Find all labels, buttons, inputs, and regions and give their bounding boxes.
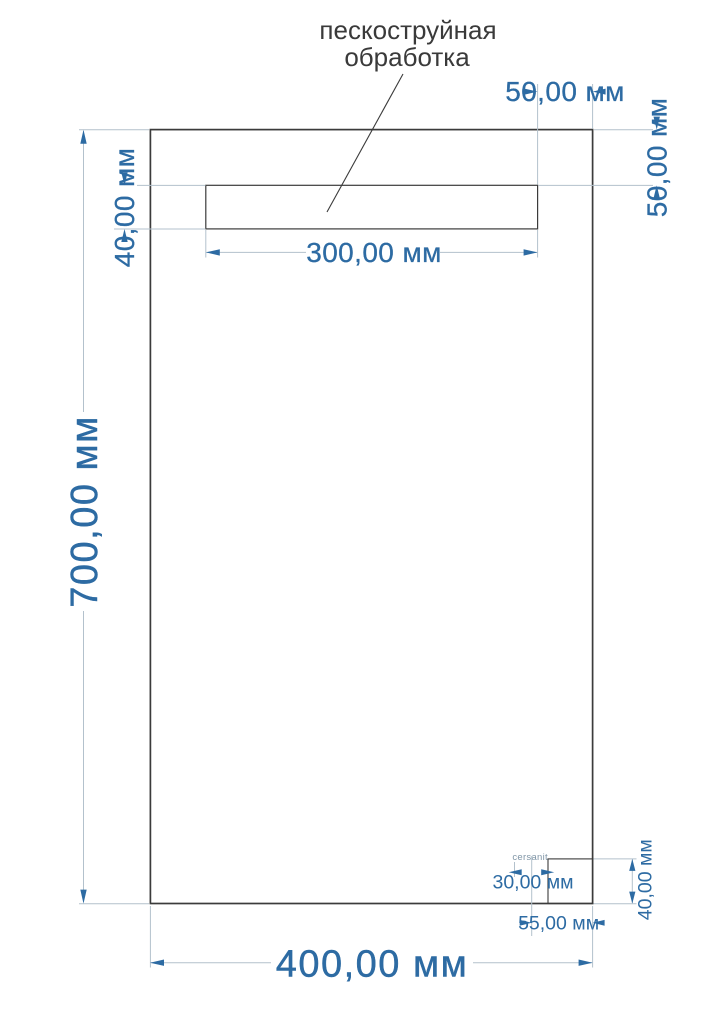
- svg-text:55,00 мм: 55,00 мм: [518, 913, 599, 935]
- svg-text:40,00 мм: 40,00 мм: [109, 148, 140, 268]
- svg-text:300,00 мм: 300,00 мм: [306, 237, 442, 268]
- svg-text:cersanit: cersanit: [512, 852, 548, 863]
- svg-text:40,00 мм: 40,00 мм: [635, 839, 657, 920]
- svg-text:400,00 мм: 400,00 мм: [276, 944, 469, 986]
- svg-text:30,00 мм: 30,00 мм: [492, 871, 573, 893]
- svg-text:50,00 мм: 50,00 мм: [505, 76, 625, 107]
- svg-text:700,00 мм: 700,00 мм: [64, 415, 106, 608]
- svg-text:пескоструйная: пескоструйная: [319, 15, 496, 45]
- svg-text:обработка: обработка: [344, 42, 470, 72]
- svg-text:50,00 мм: 50,00 мм: [642, 98, 673, 218]
